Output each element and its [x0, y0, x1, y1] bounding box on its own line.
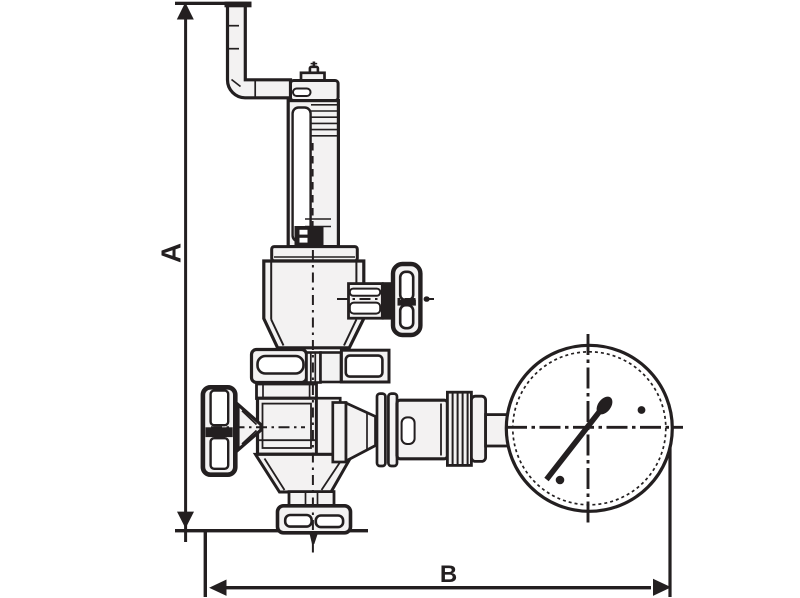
svg-text:B: B [440, 561, 457, 588]
svg-text:A: A [156, 243, 187, 263]
